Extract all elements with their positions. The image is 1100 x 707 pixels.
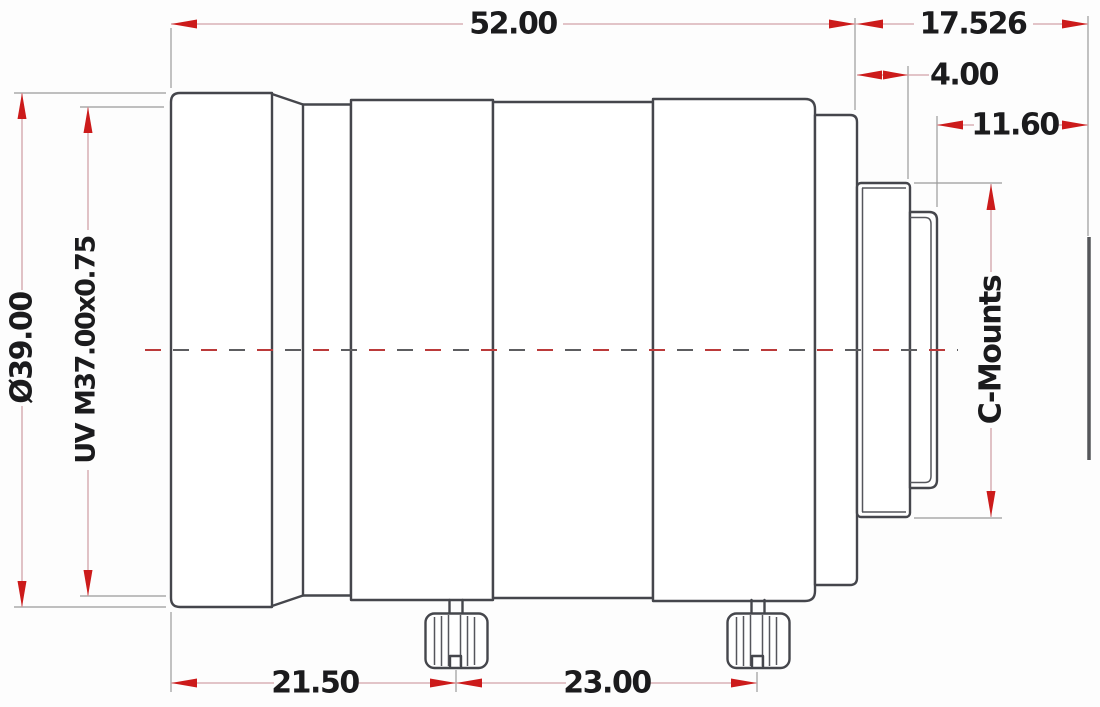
lens-body [171, 93, 937, 668]
dim-mount-type: C-Mounts [974, 275, 1009, 424]
chamfer-top [272, 94, 303, 105]
dim-front-diameter: Ø39.00 [5, 292, 40, 404]
chamfer-bottom [272, 596, 303, 607]
dim-mount-thread-length: 11.60 [971, 108, 1059, 143]
dim-rear-flange-thickness: 4.00 [930, 58, 999, 93]
dim-overall-length: 52.00 [469, 7, 557, 42]
technical-drawing-page: 52.00 17.526 4.00 11.60 Ø39.00 UV M37.00… [0, 0, 1100, 707]
thumb-knob-1 [426, 600, 488, 668]
dim-front-to-focus-knob: 21.50 [271, 666, 359, 701]
lens-dimension-drawing: 52.00 17.526 4.00 11.60 Ø39.00 UV M37.00… [0, 0, 1100, 707]
dim-knob-spacing: 23.00 [563, 666, 651, 701]
thumb-knob-2 [728, 600, 790, 668]
dim-front-filter-thread: UV M37.00x0.75 [71, 236, 102, 464]
dim-flange-back-distance: 17.526 [920, 7, 1027, 42]
